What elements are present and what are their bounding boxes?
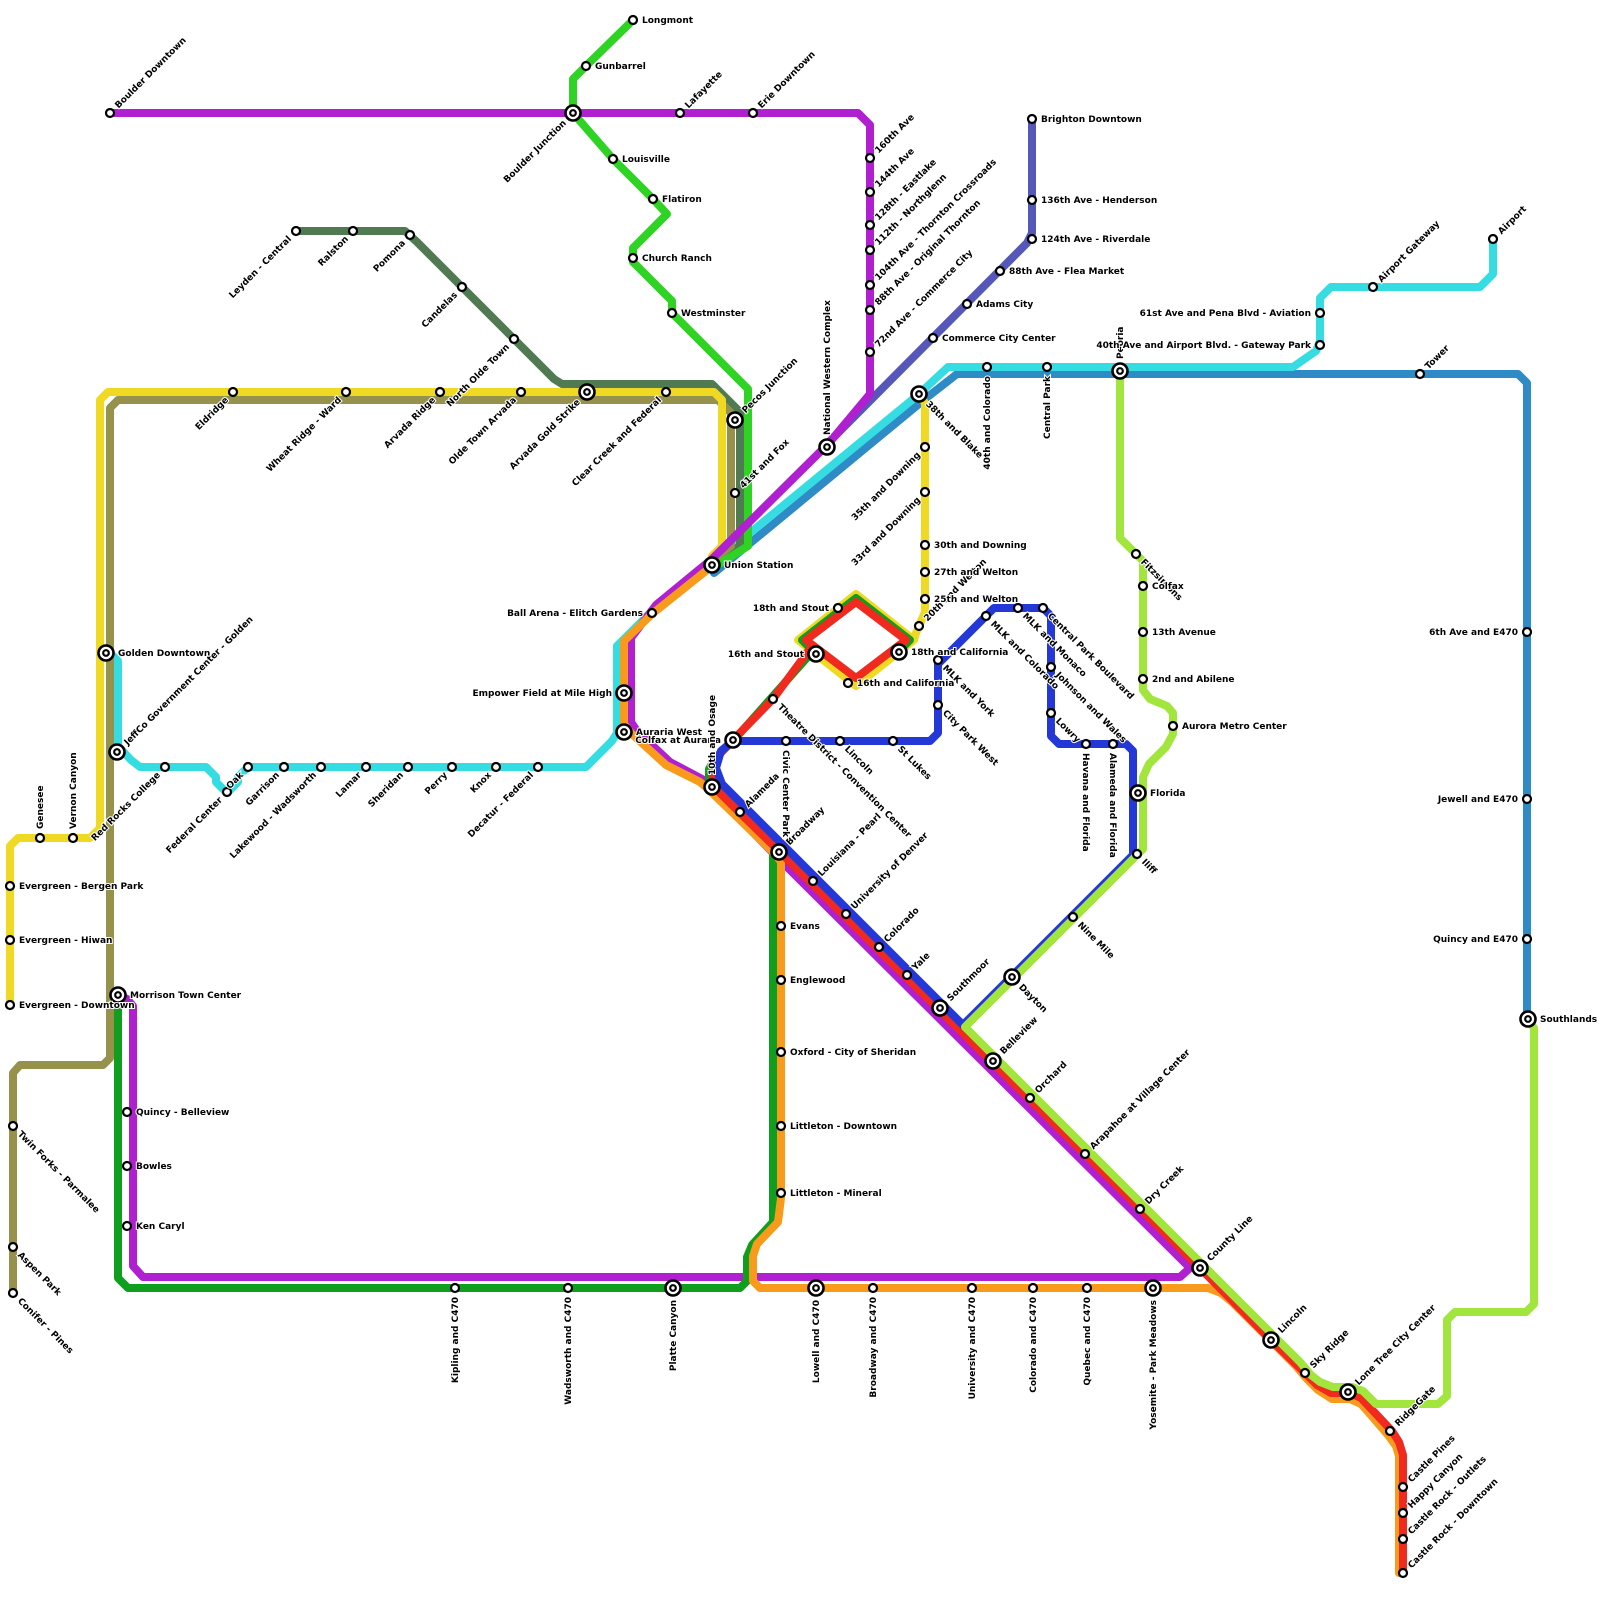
station-dot [1399,1483,1407,1491]
station-label: 16th and California [857,679,954,689]
station-marker [436,388,444,396]
station-marker [582,62,590,70]
station-marker [1521,1012,1536,1027]
station-marker [912,387,927,402]
station-label: Jewell and E470 [1437,795,1518,805]
station-dot [996,267,1004,275]
station-label: Colfax [1152,582,1184,592]
station-label: Bowles [136,1162,172,1172]
station-dot [1399,1569,1407,1577]
station-label: County Line [1206,1214,1256,1264]
station-marker [866,246,874,254]
station-marker [676,109,684,117]
station-label: St Lukes [895,745,933,783]
station-dot [564,1284,572,1292]
station-marker [1399,1483,1407,1491]
station-marker [6,936,14,944]
station-marker [404,763,412,771]
interchange-inner-ring [670,1285,676,1291]
station-dot [834,604,842,612]
station-label: Arapahoe at Village Center [1089,1047,1193,1151]
station-marker [968,1284,976,1292]
station-marker [292,227,300,235]
station-label: University of Denver [850,830,931,911]
station-label: 88th Ave - Flea Market [1009,267,1125,277]
station-marker [648,609,656,617]
station-label: Quincy - Belleview [136,1108,229,1118]
station-label: Church Ranch [642,254,712,264]
station-label: 18th and Stout [753,604,830,614]
station-marker [110,745,125,760]
station-marker [1083,1284,1091,1292]
station-marker [834,604,842,612]
station-label: Lamar [334,770,364,800]
station-labels-layer: LongmontGunbarrelBoulder JunctionLouisvi… [15,16,1597,1571]
station-dot [866,281,874,289]
station-marker [666,1281,681,1296]
station-marker [842,910,850,918]
station-marker [866,188,874,196]
station-marker [1523,628,1531,636]
station-marker [1341,1385,1356,1400]
station-label: Florida [1150,789,1185,799]
station-label: Wadsworth and C470 [564,1297,574,1405]
station-dot [869,1284,877,1292]
station-dot [280,763,288,771]
station-label: Broadway [785,805,828,848]
station-dot [1029,1284,1037,1292]
station-dot [963,300,971,308]
station-marker [777,976,785,984]
station-dot [769,695,777,703]
station-dot [534,763,542,771]
station-dot [1026,1094,1034,1102]
station-marker [921,568,929,576]
station-dot [1169,722,1177,730]
station-dot [1523,935,1531,943]
station-dot [866,306,874,314]
station-dot [866,154,874,162]
station-dot [903,971,911,979]
station-marker [1082,740,1090,748]
station-label: Colorado [883,906,922,945]
station-marker [510,335,518,343]
station-dot [777,922,785,930]
station-marker [866,221,874,229]
station-dot [1028,235,1036,243]
interchange-inner-ring [732,417,738,423]
station-dot [1489,235,1497,243]
station-label: Quincy and E470 [1433,935,1518,945]
station-dot [934,701,942,709]
station-marker [983,363,991,371]
station-dot [736,808,744,816]
station-dot [648,609,656,617]
station-marker [1139,675,1147,683]
station-label: 40th Ave and Airport Blvd. - Gateway Par… [1096,341,1312,351]
station-marker [1014,604,1022,612]
station-dot [782,737,790,745]
station-dot [1081,1150,1089,1158]
station-marker [1113,364,1128,379]
station-dot [609,155,617,163]
station-marker [69,834,77,842]
station-dot [510,335,518,343]
station-marker [1028,235,1036,243]
station-dot [866,246,874,254]
station-marker [280,763,288,771]
station-marker [106,109,114,117]
station-marker [517,388,525,396]
station-dot [915,622,923,630]
station-label: 61st Ave and Pena Blvd - Aviation [1140,309,1311,319]
station-marker [1386,1427,1394,1435]
station-marker [451,1284,459,1292]
route-cyan-line [110,239,1493,793]
station-label: Longmont [642,16,694,26]
station-label: 136th Ave - Henderson [1041,196,1157,206]
station-dot [731,489,739,497]
station-dot [982,612,990,620]
station-marker [317,763,325,771]
station-label: Garrison [244,771,282,809]
station-dot [1386,1427,1394,1435]
station-dot [1399,1509,1407,1517]
station-marker [1069,913,1077,921]
station-dot [676,109,684,117]
station-marker [1026,1094,1034,1102]
station-marker [921,488,929,496]
station-marker [726,733,741,748]
station-marker [1301,1369,1309,1377]
station-dot [929,334,937,342]
station-dot [1316,341,1324,349]
station-dot [1132,550,1140,558]
station-dot [1369,283,1377,291]
station-dot [777,1122,785,1130]
station-marker [809,647,824,662]
station-marker [1399,1509,1407,1517]
station-marker [731,489,739,497]
station-marker [915,622,923,630]
station-dot [777,976,785,984]
interchange-inner-ring [1150,1285,1156,1291]
station-marker [705,780,720,795]
station-label: Lowell and C470 [812,1300,822,1383]
station-marker [1399,1535,1407,1543]
station-marker [982,612,990,620]
interchange-inner-ring [896,649,902,655]
station-dot [629,254,637,262]
station-label: 25th and Welton [934,595,1018,605]
station-marker [564,1284,572,1292]
interchange-inner-ring [621,690,627,696]
station-marker [809,1281,824,1296]
station-label: Twin Forks - Parmalee [15,1130,101,1216]
station-label: Alameda and Florida [1107,753,1117,858]
station-dot [406,231,414,239]
station-label: Ralston [317,235,351,269]
station-marker [929,334,937,342]
station-dot [229,388,237,396]
station-marker [866,306,874,314]
interchange-inner-ring [1525,1016,1531,1022]
station-label: 30th and Downing [934,541,1027,551]
station-dot [9,1243,17,1251]
station-marker [9,1289,17,1297]
station-marker [342,388,350,396]
station-dot [649,195,657,203]
station-dot [362,763,370,771]
station-label: Ken Caryl [136,1222,185,1232]
interchange-inner-ring [584,389,590,395]
station-marker [963,300,971,308]
station-marker [9,1243,17,1251]
station-dot [1082,740,1090,748]
station-dot [9,1122,17,1130]
station-label: Lone Tree City Center [1354,1303,1439,1388]
station-marker [903,971,911,979]
station-label: Genesee [36,785,46,829]
station-marker [921,443,929,451]
station-label: Nine Mile [1075,921,1116,962]
station-marker [123,1108,131,1116]
station-dot [629,16,637,24]
station-dot [921,568,929,576]
station-marker [986,1054,1001,1069]
station-marker [609,155,617,163]
station-marker [933,1001,948,1016]
station-label: 13th Avenue [1152,628,1216,638]
station-label: Alameda [744,772,782,810]
station-dot [921,488,929,496]
station-marker [934,701,942,709]
station-marker [1005,970,1020,985]
station-label: Erie Downtown [757,50,818,111]
station-dot [458,283,466,291]
station-label: Evergreen - Bergen Park [19,882,144,892]
station-dot [866,221,874,229]
station-label: Iliff [1139,858,1158,877]
station-dot [809,877,817,885]
station-marker [406,231,414,239]
station-marker [820,440,835,455]
station-dot [404,763,412,771]
station-dot [844,679,852,687]
station-label: Ball Arena - Elitch Gardens [507,609,643,619]
station-label: Sky Ridge [1309,1328,1352,1371]
station-marker [649,195,657,203]
station-dot [889,737,897,745]
station-label: Civic Center Park [780,750,790,838]
station-label: Colorado and C470 [1029,1297,1039,1393]
station-label: Morrison Town Center [130,991,242,1001]
station-marker [777,922,785,930]
station-dot [662,388,670,396]
station-dot [448,763,456,771]
station-dot [1133,850,1141,858]
station-marker [448,763,456,771]
station-dot [1301,1369,1309,1377]
station-marker [244,763,252,771]
interchange-inner-ring [824,444,830,450]
interchange-inner-ring [709,784,715,790]
station-label: Flatiron [662,195,702,205]
interchange-inner-ring [1135,790,1141,796]
station-label: 16th and Stout [728,650,805,660]
station-label: Yosemite - Park Meadows [1149,1300,1159,1431]
station-label: 40th and Colorado [983,376,993,470]
station-dot [1047,709,1055,717]
station-marker [1169,722,1177,730]
station-dot [123,1162,131,1170]
interchange-inner-ring [813,1285,819,1291]
station-marker [1028,115,1036,123]
station-marker [123,1162,131,1170]
station-marker [1131,786,1146,801]
station-dot [777,1048,785,1056]
interchange-inner-ring [776,849,782,855]
station-marker [921,541,929,549]
station-label: Sheridan [367,771,406,810]
station-label: Conifer - Pines [15,1297,75,1357]
station-marker [1109,740,1117,748]
route-red-line [713,646,1403,1573]
station-marker [1416,370,1424,378]
station-marker [1047,709,1055,717]
station-marker [866,154,874,162]
station-dot [968,1284,976,1292]
station-marker [777,1122,785,1130]
station-label: Littleton - Mineral [790,1189,882,1199]
station-marker [99,646,114,661]
station-label: National Western Complex [823,300,833,435]
station-label: Leyden - Central [228,235,294,301]
station-label: Brighton Downtown [1041,115,1142,125]
station-marker [1316,341,1324,349]
station-label: Orchard [1034,1060,1070,1096]
station-dot [123,1222,131,1230]
station-marker [782,737,790,745]
station-marker [1369,283,1377,291]
station-dot [1039,604,1047,612]
station-label: Arvada Gold Strike [508,398,583,473]
station-marker [772,845,787,860]
station-label: Quebec and C470 [1083,1297,1093,1386]
station-dot [6,936,14,944]
station-dot [244,763,252,771]
station-dot [36,834,44,842]
station-dot [777,1189,785,1197]
station-label: Federal Center [165,795,226,856]
station-label: Central Park [1043,375,1053,439]
interchange-inner-ring [115,992,121,998]
station-marker [749,109,757,117]
station-label: Candelas [420,291,460,331]
station-dot [866,348,874,356]
station-label: Empower Field at Mile High [473,689,612,699]
station-label: Wheat Ridge - Ward [265,396,344,475]
station-dot [1399,1535,1407,1543]
station-dot [342,388,350,396]
station-marker [662,388,670,396]
station-marker [6,1001,14,1009]
interchange-inner-ring [709,562,715,568]
station-marker [1193,1261,1208,1276]
transit-map-page: LongmontGunbarrelBoulder JunctionLouisvi… [0,0,1600,1600]
station-label: Theatre District - Convention Center [775,703,913,841]
station-dot [1069,913,1077,921]
station-marker [866,348,874,356]
station-label: Union Station [724,561,793,571]
station-marker [617,686,632,701]
interchange-inner-ring [103,650,109,656]
station-dot [161,763,169,771]
interchange-inner-ring [937,1005,943,1011]
station-marker [9,1122,17,1130]
station-dot [106,109,114,117]
station-label: Oxford - City of Sheridan [790,1048,916,1058]
station-marker [668,309,676,317]
station-dot [921,595,929,603]
station-label: Airport Gateway [1377,219,1443,285]
station-dot [1139,582,1147,590]
station-dot [866,188,874,196]
station-label: Belleview [999,1015,1040,1056]
station-dot [668,309,676,317]
station-label: Airport [1497,204,1530,237]
station-dot [123,1108,131,1116]
station-label: Knox [469,770,494,795]
station-dot [836,737,844,745]
station-label: Adams City [976,300,1033,310]
station-dot [6,1001,14,1009]
route-lines-layer [10,20,1534,1573]
station-marker [1316,309,1324,317]
station-marker [123,1222,131,1230]
station-label: Havana and Florida [1080,753,1090,852]
interchange-inner-ring [570,110,576,116]
station-marker [705,558,720,573]
station-dot [6,882,14,890]
station-dot [1047,663,1055,671]
station-marker [617,725,632,740]
station-marker [836,737,844,745]
station-label: Evans [790,922,820,932]
station-label: Lafayette [684,70,725,111]
interchange-inner-ring [990,1058,996,1064]
station-dot [1139,628,1147,636]
station-label: Kipling and C470 [451,1297,461,1383]
station-marker [809,877,817,885]
station-dot [9,1289,17,1297]
station-label: Dayton [1016,983,1049,1016]
station-label: Broadway and C470 [869,1297,879,1398]
station-label: 10th and Osage [708,695,718,775]
station-marker [728,413,743,428]
station-label: Platte Canyon [669,1300,679,1371]
station-label: 124th Ave - Riverdale [1041,235,1150,245]
station-marker [1489,235,1497,243]
interchange-inner-ring [916,391,922,397]
station-dot [1109,740,1117,748]
station-dot [317,763,325,771]
interchange-inner-ring [730,737,736,743]
station-marker [1081,1150,1089,1158]
station-marker [892,645,907,660]
station-label: Southmoor [946,957,993,1004]
station-marker [1039,604,1047,612]
